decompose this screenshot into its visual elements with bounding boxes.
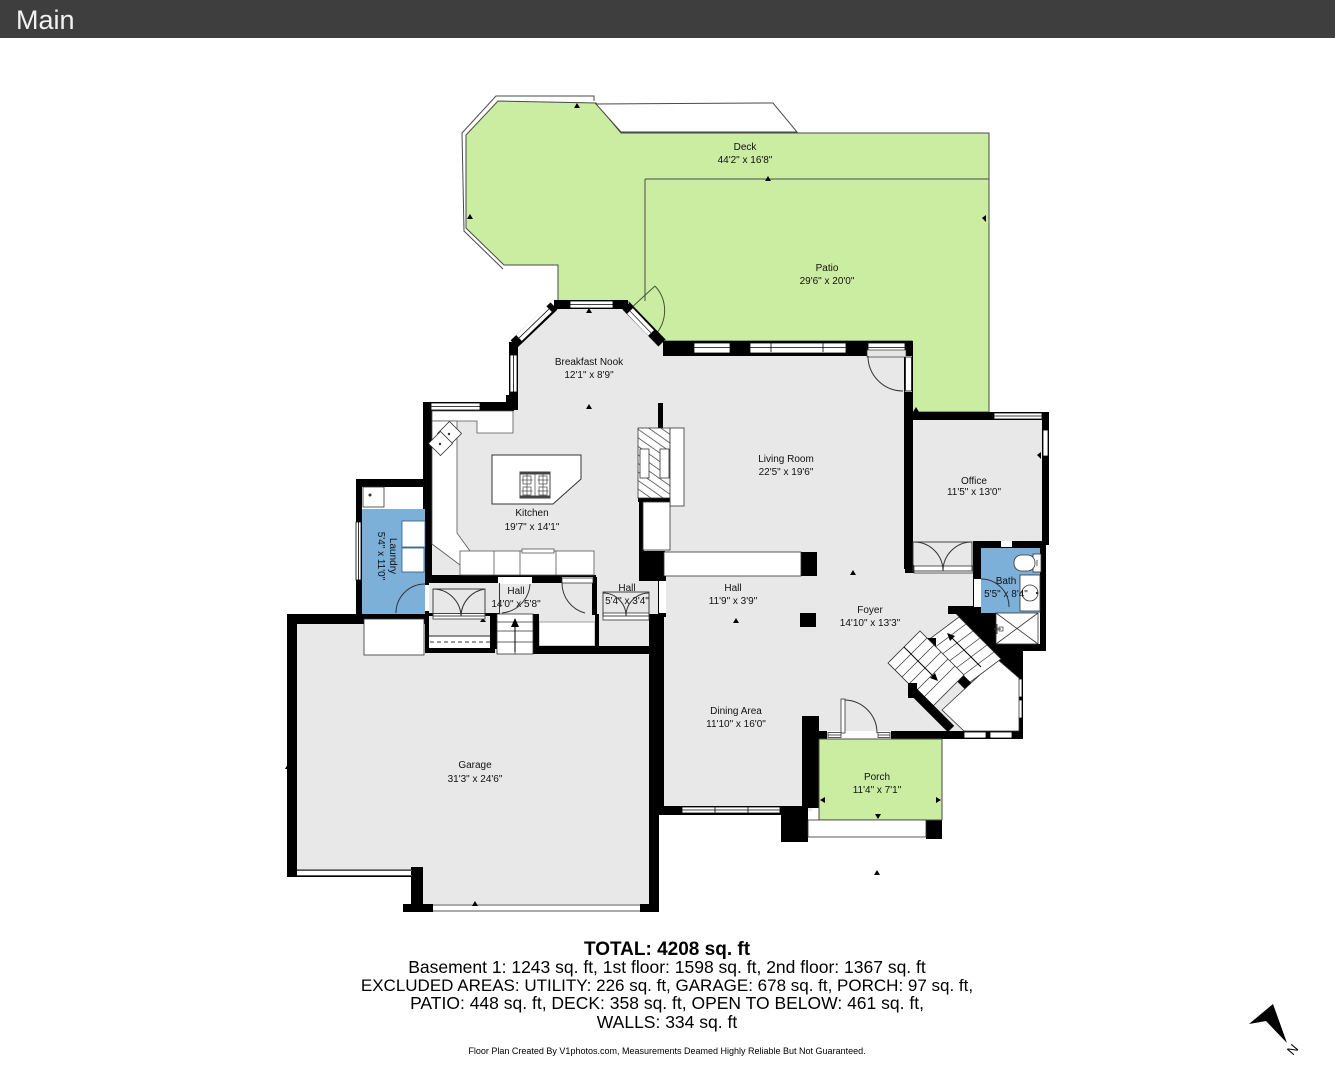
svg-text:19'7" x 14'1": 19'7" x 14'1" xyxy=(505,522,560,533)
svg-text:Hall: Hall xyxy=(724,583,741,594)
svg-text:Floor Plan Created By V1photos: Floor Plan Created By V1photos.com, Meas… xyxy=(468,1046,865,1056)
svg-text:Foyer: Foyer xyxy=(857,605,883,616)
svg-text:Living Room: Living Room xyxy=(758,454,814,465)
svg-text:Basement 1: 1243 sq. ft, 1st f: Basement 1: 1243 sq. ft, 1st floor: 1598… xyxy=(408,957,926,977)
svg-text:5'4" x 11'0": 5'4" x 11'0" xyxy=(375,532,386,581)
svg-text:Dining Area: Dining Area xyxy=(710,706,762,717)
svg-text:11'5" x 13'0": 11'5" x 13'0" xyxy=(947,487,1002,498)
svg-text:WALLS: 334 sq. ft: WALLS: 334 sq. ft xyxy=(597,1012,738,1032)
svg-text:12'1" x 8'9": 12'1" x 8'9" xyxy=(564,370,614,381)
svg-text:22'5" x 19'6": 22'5" x 19'6" xyxy=(759,467,814,478)
svg-text:5'4" x 3'4": 5'4" x 3'4" xyxy=(605,596,649,607)
svg-text:Office: Office xyxy=(961,476,987,487)
svg-text:Porch: Porch xyxy=(864,772,890,783)
svg-text:14'10" x 13'3": 14'10" x 13'3" xyxy=(840,618,901,629)
svg-text:Main: Main xyxy=(16,5,75,35)
svg-text:29'6" x 20'0": 29'6" x 20'0" xyxy=(800,276,855,287)
svg-text:11'9" x 3'9": 11'9" x 3'9" xyxy=(709,596,758,607)
svg-text:Patio: Patio xyxy=(816,263,839,274)
svg-text:Breakfast Nook: Breakfast Nook xyxy=(555,357,624,368)
svg-text:Laundry: Laundry xyxy=(387,538,398,574)
svg-text:N: N xyxy=(1284,1041,1302,1058)
svg-text:11'10" x 16'0": 11'10" x 16'0" xyxy=(706,719,766,730)
svg-text:11'4" x 7'1": 11'4" x 7'1" xyxy=(853,785,902,796)
svg-text:PATIO: 448 sq. ft, DECK: 358 s: PATIO: 448 sq. ft, DECK: 358 sq. ft, OPE… xyxy=(410,993,924,1013)
svg-text:Hall: Hall xyxy=(507,586,524,597)
svg-text:Kitchen: Kitchen xyxy=(515,508,548,519)
svg-text:31'3" x 24'6": 31'3" x 24'6" xyxy=(448,774,503,785)
svg-text:Deck: Deck xyxy=(734,142,758,153)
svg-text:Garage: Garage xyxy=(458,760,492,771)
svg-text:44'2" x 16'8": 44'2" x 16'8" xyxy=(718,155,773,166)
